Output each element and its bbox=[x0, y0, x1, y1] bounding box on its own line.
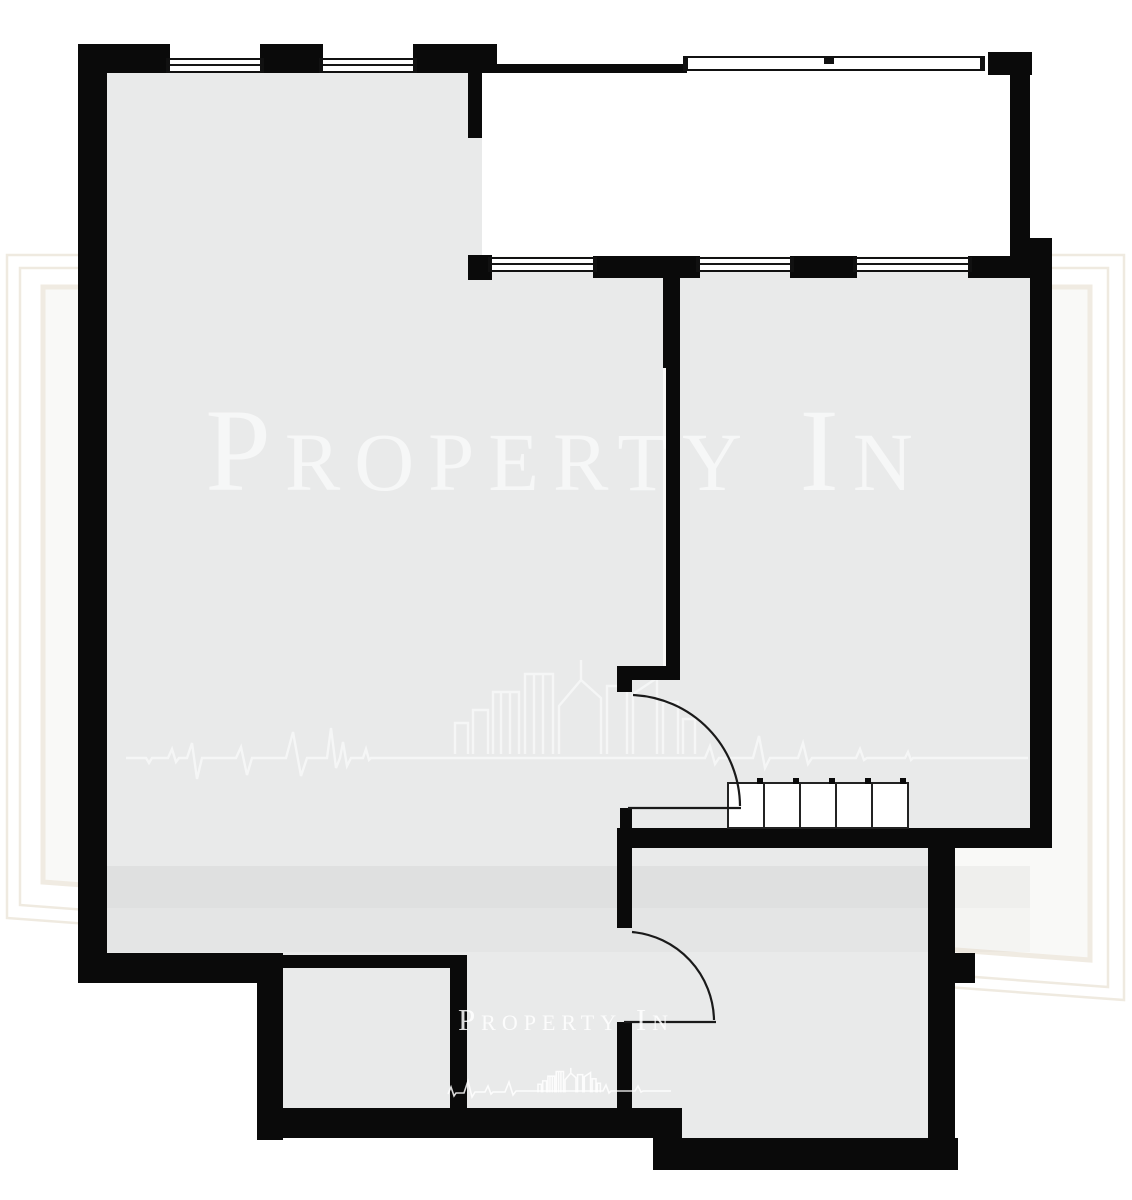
wall bbox=[593, 256, 700, 278]
living-room-floor bbox=[107, 258, 663, 958]
window bbox=[853, 257, 972, 272]
window bbox=[166, 58, 264, 73]
floor-plan-image: Property In bbox=[0, 0, 1132, 1200]
wall bbox=[790, 256, 857, 278]
wall bbox=[78, 44, 107, 983]
wall bbox=[653, 1138, 958, 1170]
wall bbox=[78, 953, 283, 983]
wall bbox=[617, 666, 680, 680]
wall bbox=[260, 44, 323, 73]
wall bbox=[620, 808, 632, 830]
wall bbox=[663, 256, 680, 368]
wall bbox=[283, 955, 467, 968]
wall bbox=[666, 368, 680, 668]
wardrobe bbox=[727, 780, 909, 832]
balcony-floor bbox=[482, 56, 1010, 256]
bedroom-floor bbox=[680, 270, 1030, 830]
wardrobe-section bbox=[871, 782, 909, 829]
wall bbox=[257, 1108, 682, 1138]
wardrobe-handle bbox=[829, 778, 835, 784]
living-room-floor bbox=[107, 73, 482, 258]
wall bbox=[955, 953, 975, 983]
rail-tick bbox=[824, 58, 834, 64]
wall bbox=[497, 64, 687, 73]
watermark-brand-text: Property In bbox=[0, 392, 1132, 510]
floor-shadow-band bbox=[107, 908, 1030, 952]
wall bbox=[450, 968, 467, 1110]
wardrobe-section bbox=[835, 782, 873, 829]
wardrobe-handle bbox=[900, 778, 906, 784]
wall bbox=[468, 73, 482, 138]
wardrobe-section bbox=[727, 782, 765, 829]
floor-shadow-band bbox=[107, 866, 1030, 908]
wall bbox=[1010, 57, 1030, 242]
storage-room-floor bbox=[283, 966, 453, 1110]
wall bbox=[617, 680, 632, 692]
wardrobe-handle bbox=[865, 778, 871, 784]
window bbox=[488, 257, 597, 272]
wardrobe-section bbox=[799, 782, 837, 829]
window bbox=[696, 257, 794, 272]
wall bbox=[617, 848, 632, 928]
wardrobe-section bbox=[763, 782, 801, 829]
wall bbox=[968, 256, 1030, 278]
wardrobe-handle bbox=[757, 778, 763, 784]
watermark-footer-text: Property In bbox=[0, 1004, 1132, 1035]
window bbox=[319, 58, 417, 73]
wall bbox=[1030, 238, 1052, 848]
wall bbox=[413, 44, 497, 73]
balcony-rail bbox=[683, 56, 985, 71]
wardrobe-handle bbox=[793, 778, 799, 784]
